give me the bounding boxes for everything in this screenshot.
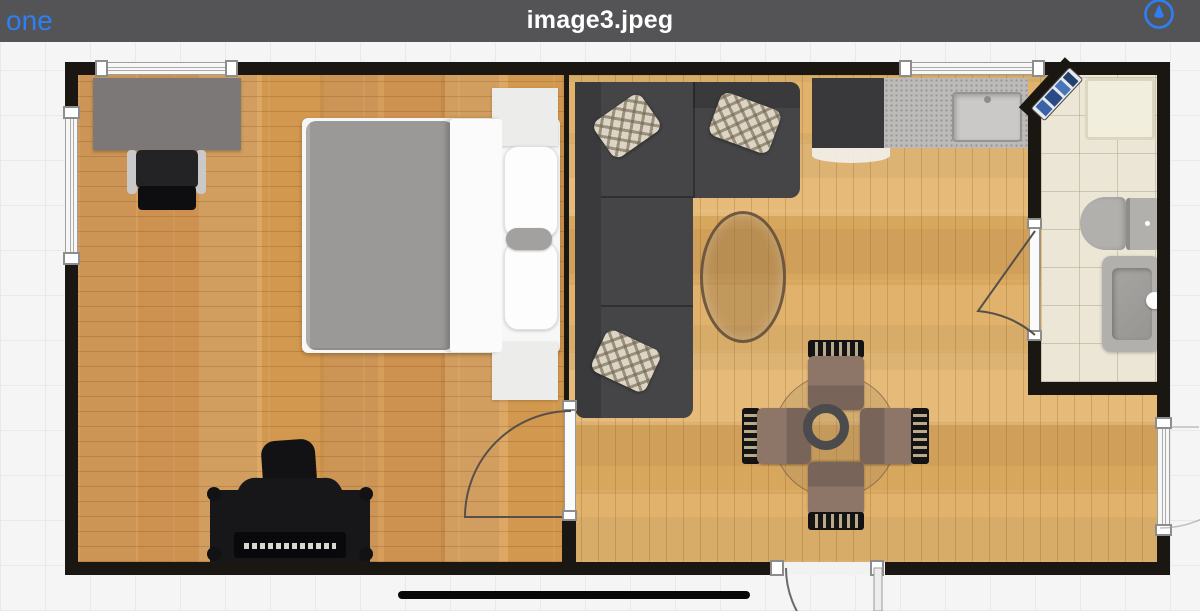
- bed-accent-pillow: [506, 228, 552, 250]
- toilet-flush-button: [1145, 221, 1150, 226]
- door-frame: [1027, 330, 1042, 341]
- dining-chair-left-seat: [757, 408, 811, 464]
- top-toolbar: one image3.jpeg: [0, 0, 1200, 42]
- toilet-bowl: [1080, 197, 1126, 250]
- door-frame: [1155, 524, 1172, 536]
- dining-chair-right-seat: [860, 408, 914, 464]
- door-frame: [870, 560, 884, 576]
- bathroom-wall-bottom: [1028, 382, 1170, 395]
- window-frame: [95, 60, 108, 77]
- dining-table-center-ring: [803, 404, 849, 450]
- office-chair-back: [138, 186, 196, 210]
- kitchen-mat: [812, 148, 890, 163]
- window-frame: [225, 60, 238, 77]
- bathroom-door-frame: [1029, 227, 1040, 333]
- shower-tray: [1085, 78, 1155, 140]
- sofa-cushion-seam: [601, 196, 693, 198]
- bathroom-wall-left-lower: [1028, 338, 1041, 388]
- sofa-cushion-seam: [693, 82, 695, 198]
- dining-chair-right-back: [911, 408, 929, 464]
- door-frame: [770, 560, 784, 576]
- kitchen-faucet: [984, 96, 991, 103]
- dining-chair-top-seat: [808, 356, 864, 410]
- toilet-tank: [1126, 198, 1158, 250]
- bedroom-left-window: [65, 112, 78, 258]
- ios-image-preview-screen: one image3.jpeg: [0, 0, 1200, 611]
- home-indicator[interactable]: [398, 591, 750, 599]
- desk: [93, 78, 241, 150]
- dining-chair-bottom-back: [808, 512, 864, 530]
- entry-door-opening: [771, 562, 885, 575]
- bedroom-door-leaf: [564, 408, 576, 512]
- bed-pillow-top: [504, 146, 558, 238]
- door-frame: [1027, 218, 1042, 229]
- partition-wall-stub: [562, 518, 576, 566]
- window-frame: [1032, 60, 1045, 77]
- cooktop: [812, 78, 884, 148]
- door-frame: [1155, 417, 1172, 429]
- floorplan-image[interactable]: [0, 0, 1200, 611]
- bed-pillow-bottom: [504, 242, 558, 330]
- window-frame: [63, 106, 80, 119]
- kitchen-window: [905, 62, 1040, 75]
- door-frame: [562, 400, 577, 411]
- window-frame: [899, 60, 912, 77]
- bathroom-wall-left-upper: [1028, 100, 1041, 220]
- bedroom-top-window: [100, 62, 232, 75]
- page-title: image3.jpeg: [0, 6, 1200, 35]
- bed-folded-sheet: [450, 119, 502, 352]
- nightstand-bottom: [492, 342, 558, 400]
- partition-wall-bedroom: [564, 75, 569, 408]
- bed-duvet: [306, 121, 454, 350]
- wall-bottom: [65, 562, 1170, 575]
- dining-chair-bottom-seat: [808, 462, 864, 516]
- door-frame: [562, 510, 577, 521]
- markup-pen-circle-icon[interactable]: [1142, 0, 1176, 29]
- window-frame: [63, 252, 80, 265]
- sofa-cushion-seam: [601, 305, 693, 307]
- office-chair-seat: [136, 150, 198, 188]
- oval-coffee-table: [700, 211, 786, 343]
- terrace-door-opening: [1157, 423, 1170, 528]
